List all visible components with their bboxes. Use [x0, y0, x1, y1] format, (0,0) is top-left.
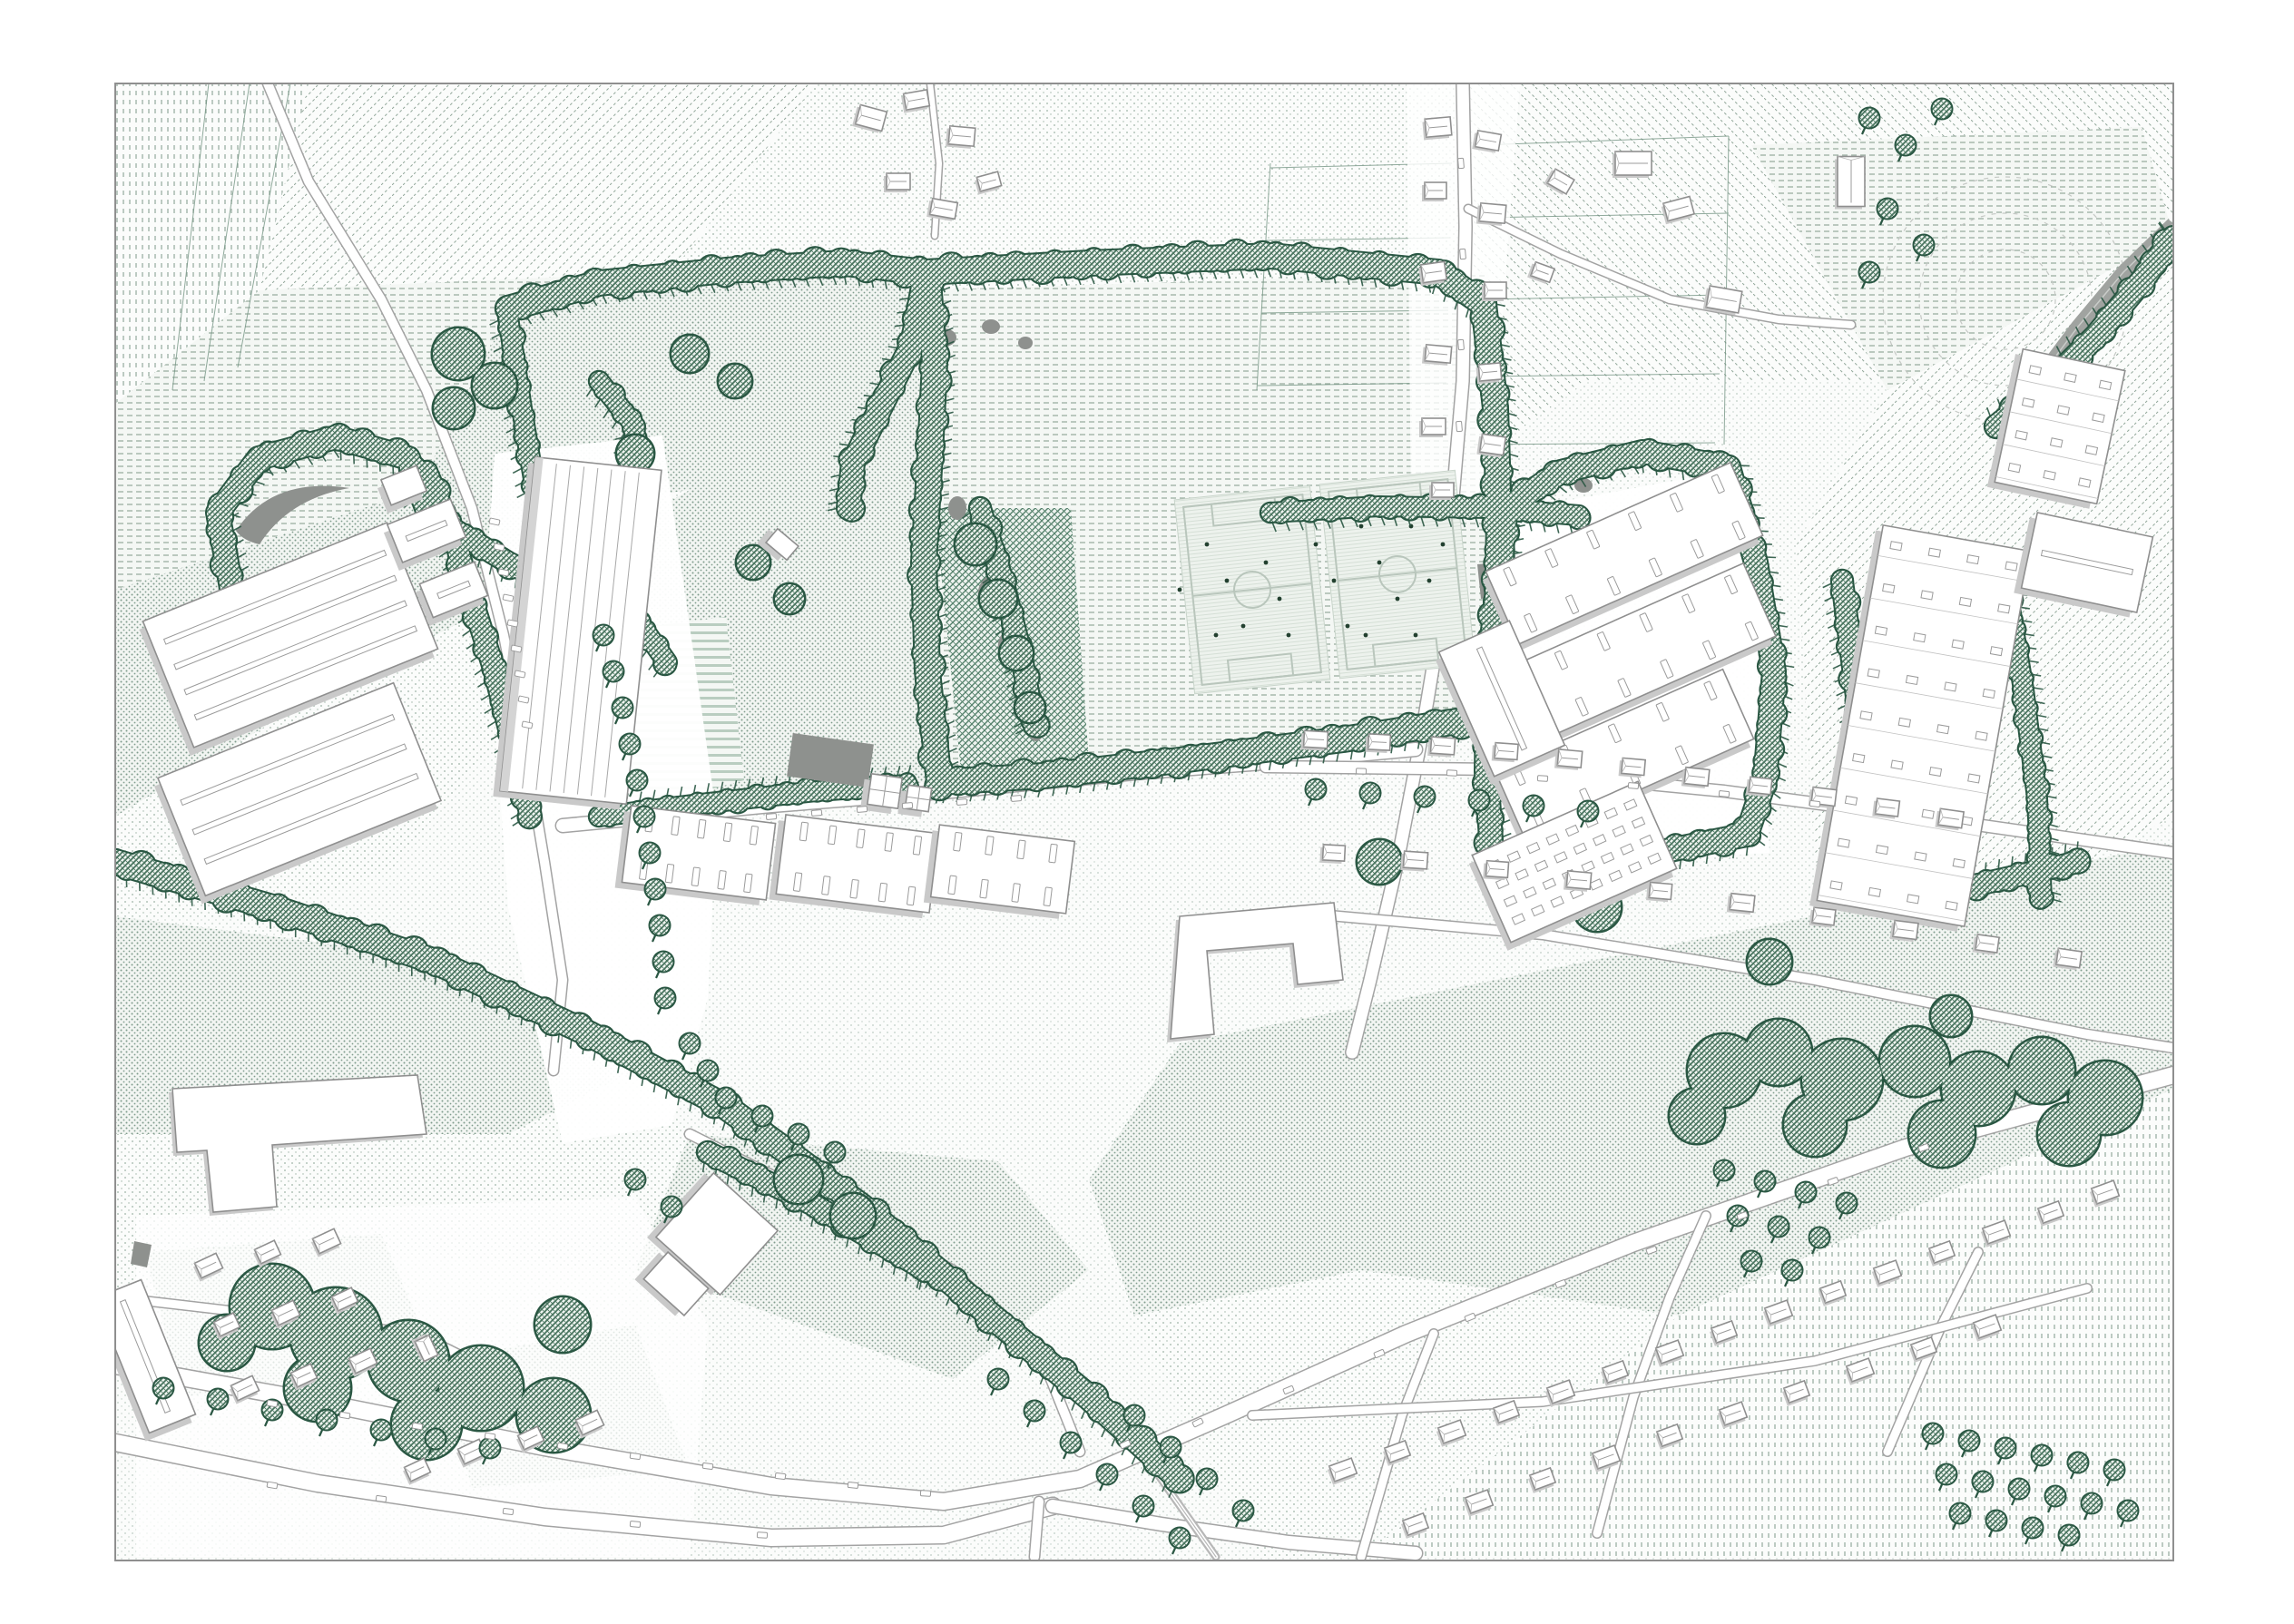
tree-canopy [1933, 100, 1952, 119]
tree-canopy [372, 1421, 391, 1440]
tree-canopy [1416, 788, 1435, 807]
tree-canopy [656, 989, 675, 1008]
res-e-house [1564, 871, 1592, 892]
pond [982, 319, 1000, 334]
hedge-scallop [654, 653, 675, 674]
window-opening [1921, 591, 1933, 600]
car [1809, 800, 1820, 807]
car-body [1456, 421, 1463, 431]
res-e-house [1809, 907, 1836, 928]
car-body [775, 1472, 786, 1479]
car-body [1356, 768, 1366, 774]
tree-cluster [2009, 1038, 2074, 1103]
tree-cluster [433, 328, 484, 379]
tree-canopy [1756, 1172, 1775, 1191]
tree-cluster [1000, 637, 1033, 670]
village-barn [1835, 157, 1865, 210]
window-opening [1998, 604, 2010, 613]
tree-canopy [1915, 236, 1934, 255]
tree-canopy [662, 1198, 681, 1217]
window-opening [1883, 583, 1895, 592]
tree-cluster [2038, 1103, 2100, 1165]
village-house [1418, 261, 1447, 286]
car-body [339, 1412, 350, 1419]
tree-canopy [1860, 109, 1879, 128]
window-opening [1906, 676, 1917, 685]
window-opening [1860, 711, 1872, 720]
tree-canopy [635, 807, 654, 827]
tree-canopy [604, 662, 623, 681]
window-opening [2005, 562, 2017, 571]
tree-canopy [789, 1125, 809, 1144]
window-opening [1946, 901, 1957, 910]
car-body [267, 1482, 278, 1489]
tree-canopy [826, 1143, 845, 1162]
person-dot [1178, 588, 1182, 592]
tree-cluster [775, 584, 804, 613]
tree-canopy [1025, 1402, 1044, 1421]
res-e-house [1492, 742, 1518, 762]
car-body [1011, 796, 1021, 802]
window-opening [1959, 597, 1971, 606]
car [766, 814, 776, 820]
tree-cluster [368, 1321, 448, 1401]
person-dot [1414, 633, 1418, 638]
res-e-house [2053, 948, 2082, 971]
res-e-house [1727, 893, 1755, 915]
person-dot [1287, 633, 1291, 638]
car-body [857, 807, 867, 813]
site-plan-drawing [0, 0, 2294, 1624]
tree-canopy [1742, 1252, 1761, 1271]
res-e-house [1365, 734, 1390, 753]
tree-canopy [646, 880, 665, 899]
tree-canopy [621, 735, 640, 754]
tree-cluster [473, 364, 516, 407]
car-body [1628, 783, 1638, 789]
person-dot [1332, 579, 1337, 583]
car [1460, 249, 1466, 259]
car-body [766, 814, 776, 820]
drawing-area [89, 83, 2187, 1560]
window-opening [1953, 859, 1965, 868]
res-e-house [1646, 882, 1672, 902]
tree-canopy [209, 1390, 228, 1409]
hedge-scallop [2066, 849, 2089, 872]
tree-cluster [285, 1355, 350, 1421]
tree-canopy [1062, 1433, 1081, 1453]
tree-canopy [654, 953, 673, 972]
car-body [811, 810, 821, 817]
car [902, 803, 912, 809]
building-roof [931, 825, 1075, 914]
tree-canopy [989, 1370, 1008, 1389]
car [1456, 421, 1463, 431]
window-opening [1891, 760, 1903, 769]
tree-cluster [719, 365, 751, 397]
car-body [920, 1491, 930, 1497]
tree-cluster [831, 1194, 875, 1238]
car-body [1458, 158, 1465, 168]
car [757, 1532, 767, 1539]
tree-canopy [2010, 1480, 2029, 1499]
car-body [1719, 790, 1730, 797]
hedge-scallop [921, 269, 944, 292]
tree-canopy [2060, 1526, 2079, 1545]
window-opening [1968, 774, 1980, 783]
village-barn [1613, 152, 1652, 178]
car-body [412, 1423, 423, 1430]
window-opening [1876, 846, 1887, 855]
car [339, 1412, 350, 1419]
village-house [1476, 434, 1505, 458]
person-dot [1364, 633, 1368, 638]
tree-canopy [1307, 780, 1326, 799]
tree-canopy [1579, 802, 1598, 821]
res-e-house [1973, 934, 2000, 955]
tree-cluster [737, 546, 770, 579]
road-connector [1034, 1502, 1039, 1557]
window-opening [1967, 555, 1979, 564]
tree-canopy [1783, 1261, 1802, 1280]
tree-cluster [1909, 1101, 1975, 1167]
car-body [557, 1443, 568, 1450]
tree-canopy [1960, 1432, 1979, 1451]
window-opening [1890, 542, 1902, 551]
car-body [702, 1463, 713, 1469]
window-opening [1945, 682, 1956, 691]
tree-canopy [1951, 1504, 1970, 1523]
person-dot [1346, 624, 1350, 629]
tree-canopy [2083, 1494, 2102, 1513]
tree-cluster [1748, 940, 1791, 983]
tree-canopy [1134, 1497, 1153, 1516]
tree-canopy [1162, 1438, 1181, 1457]
tree-canopy [1987, 1511, 2006, 1531]
village-house [1482, 282, 1506, 301]
village-house [1419, 418, 1446, 437]
tree-canopy [594, 626, 613, 645]
window-opening [1875, 626, 1887, 635]
car [503, 1508, 514, 1514]
car [630, 1521, 640, 1528]
tree-cluster [1015, 693, 1044, 722]
tree-canopy [1996, 1439, 2015, 1458]
hedge-shadow-tick [113, 869, 114, 884]
car-body [1537, 776, 1547, 782]
tree-canopy [717, 1089, 736, 1108]
hedge-scallop [2164, 228, 2185, 249]
tree-cluster [1358, 840, 1401, 884]
tree-canopy [1470, 791, 1489, 810]
person-dot [1214, 633, 1219, 638]
tree-canopy [681, 1034, 700, 1053]
car-body [956, 799, 966, 806]
window-opening [1853, 754, 1865, 763]
window-opening [1845, 796, 1857, 805]
tree-canopy [1234, 1502, 1253, 1521]
window-opening [1898, 718, 1910, 727]
tree-canopy [154, 1379, 173, 1398]
tree-canopy [1838, 1194, 1857, 1213]
tree-canopy [2024, 1519, 2043, 1538]
window-opening [1868, 669, 1879, 678]
car [920, 1491, 930, 1497]
tree-canopy [626, 1170, 645, 1189]
tree-canopy [1974, 1472, 1993, 1492]
car [412, 1423, 423, 1430]
village-house [1476, 203, 1506, 227]
tree-canopy [1098, 1465, 1117, 1484]
res-e-house [1554, 749, 1583, 770]
tree-canopy [753, 1107, 772, 1126]
window-opening [1975, 731, 1987, 740]
tree-canopy [699, 1061, 718, 1081]
hamlet-house [946, 126, 975, 150]
car [485, 1433, 495, 1440]
person-dot [1396, 597, 1400, 602]
tree-canopy [641, 844, 660, 863]
tree-canopy [1171, 1529, 1190, 1548]
tree-canopy [2069, 1453, 2088, 1472]
car [857, 807, 867, 813]
tree-canopy [1878, 200, 1897, 219]
tree-cluster [1931, 996, 1971, 1036]
tree-canopy [2119, 1502, 2138, 1521]
res-e-house [1400, 851, 1427, 872]
car [376, 1495, 387, 1502]
person-dot [1377, 561, 1382, 565]
hedge-scallop [1568, 507, 1589, 528]
car [1537, 776, 1547, 782]
person-dot [1225, 579, 1230, 583]
car [848, 1482, 858, 1488]
person-dot [1241, 624, 1246, 629]
res-e-house [1746, 777, 1772, 797]
window-opening [1983, 689, 1995, 698]
window-opening [1937, 725, 1949, 734]
res-e-house [1890, 920, 1918, 942]
tree-canopy [1860, 263, 1879, 282]
tree-canopy [1770, 1218, 1789, 1237]
hedge-scallop [839, 496, 864, 521]
tree-canopy [1937, 1465, 1956, 1484]
tree-canopy [1524, 797, 1544, 816]
tree-canopy [1924, 1424, 1943, 1443]
tree-canopy [628, 771, 647, 790]
car [956, 799, 966, 806]
car [267, 1400, 278, 1407]
res-e-house [1300, 730, 1328, 750]
car-body [1458, 339, 1465, 349]
tree-canopy [1715, 1161, 1734, 1180]
car-body [630, 1521, 640, 1528]
tree-canopy [1810, 1228, 1829, 1247]
res-e-house [1483, 860, 1508, 880]
car [1011, 796, 1021, 802]
tree-cluster [434, 388, 474, 428]
window-opening [1929, 768, 1941, 777]
car-body [485, 1433, 495, 1440]
res-e-house [1319, 845, 1345, 864]
tree-cluster [1880, 1027, 1949, 1096]
car [702, 1463, 713, 1469]
tree-cluster [1746, 1020, 1811, 1085]
person-dot [1205, 543, 1210, 547]
car-body [376, 1495, 387, 1502]
window-opening [1907, 895, 1919, 904]
car [1356, 768, 1366, 774]
hamlet-house [884, 173, 910, 192]
res-e-house [1619, 758, 1646, 778]
tree-canopy [426, 1430, 446, 1449]
car [1458, 158, 1465, 168]
car [1719, 790, 1730, 797]
car [267, 1482, 278, 1489]
res-e-house [1872, 798, 1899, 819]
tree-canopy [481, 1439, 500, 1458]
tree-canopy [2105, 1461, 2124, 1480]
car-body [503, 1508, 514, 1514]
tree-cluster [535, 1297, 590, 1352]
hedge-scallop [1167, 1465, 1193, 1492]
pond [1018, 337, 1033, 349]
car-body [1460, 249, 1466, 259]
car [1458, 339, 1465, 349]
person-dot [1359, 524, 1364, 529]
tree-canopy [1797, 1183, 1816, 1202]
hedge-scallop [916, 1262, 935, 1281]
tree-cluster [1784, 1094, 1846, 1156]
tree-cluster [775, 1156, 822, 1203]
masterplan-sheet [0, 0, 2294, 1624]
car [1446, 770, 1456, 777]
pond [948, 496, 966, 520]
window-opening [1990, 647, 2002, 656]
tree-canopy [1198, 1470, 1217, 1489]
hedge-scallop [2031, 888, 2050, 907]
window-opening [1868, 887, 1880, 896]
window-opening [1928, 548, 1940, 557]
tree-canopy [651, 916, 670, 935]
window-opening [1914, 633, 1926, 642]
village-house [1422, 182, 1446, 201]
tree-canopy [318, 1411, 337, 1430]
tree-canopy [1125, 1406, 1144, 1425]
person-dot [1264, 561, 1269, 565]
window-opening [1922, 809, 1934, 818]
village-house [1475, 363, 1502, 384]
tree-cluster [392, 1390, 461, 1459]
car-body [630, 1453, 641, 1459]
res-e-house [1935, 808, 1964, 831]
village-house [1429, 483, 1454, 500]
person-dot [1427, 579, 1432, 583]
res-e-house [1681, 767, 1710, 788]
tree-canopy [2033, 1446, 2052, 1465]
tree-canopy [1897, 136, 1916, 155]
tree-cluster [672, 336, 708, 372]
window-opening [1838, 838, 1849, 847]
tree-canopy [613, 699, 632, 718]
window-opening [1830, 881, 1842, 890]
car [630, 1453, 641, 1459]
car-body [757, 1532, 767, 1539]
window-opening [1915, 852, 1926, 861]
car-body [902, 803, 912, 809]
car-body [1446, 770, 1456, 777]
tree-canopy [1361, 784, 1380, 803]
person-dot [1278, 597, 1282, 602]
car-body [267, 1400, 278, 1407]
village-house [1422, 117, 1452, 141]
person-dot [1441, 543, 1446, 547]
car-body [1809, 800, 1820, 807]
tree-cluster [956, 524, 995, 564]
car [1628, 783, 1638, 789]
res-e-house [1427, 737, 1455, 758]
tree-cluster [980, 581, 1016, 617]
person-dot [1314, 543, 1319, 547]
car-body [848, 1482, 858, 1488]
car [811, 810, 821, 817]
tree-cluster [1670, 1089, 1724, 1143]
car [557, 1443, 568, 1450]
car [775, 1472, 786, 1479]
hedge-scallop [519, 807, 540, 827]
village-house [1422, 345, 1452, 367]
window-opening [1952, 640, 1964, 649]
tree-canopy [2046, 1487, 2065, 1506]
